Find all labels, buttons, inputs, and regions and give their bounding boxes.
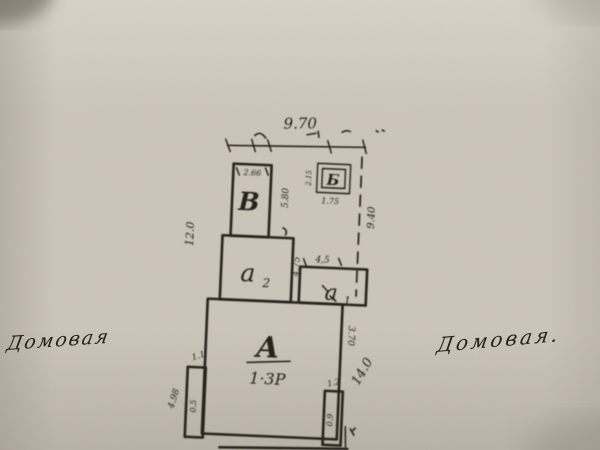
dim-tick <box>344 427 346 447</box>
room-a2-index: 2 <box>261 276 270 290</box>
dim-room-v-height: 5.80 <box>281 187 292 208</box>
room-a1-label: а <box>324 281 338 307</box>
dim-porch-right-inner: 0.9 <box>325 414 335 427</box>
building-a-sublabel: 1·3Р <box>249 369 286 390</box>
room-a1-index: 1 <box>344 295 352 308</box>
kiosk-b-label: Б <box>325 171 340 190</box>
dim-room-v-width: 2.66 <box>242 168 261 178</box>
room-a2-label: а <box>240 258 256 288</box>
dim-top-width: 9.70 <box>283 114 317 132</box>
dim-right-boundary: 9.40 <box>366 206 378 229</box>
dim-wall-right-upper: 3.70 <box>345 326 356 347</box>
building-a-label: А <box>253 330 280 365</box>
scanned-plan-page: 9.70 9.40 12.0 В 2.66 5.80 Б 1.75 2.15 а… <box>0 0 600 450</box>
dim-left-side: 12.0 <box>183 221 197 246</box>
dim-porch-left-width: 0.5 <box>189 400 199 413</box>
plan-canvas: 9.70 9.40 12.0 В 2.66 5.80 Б 1.75 2.15 а… <box>0 0 600 450</box>
paper-grain <box>0 0 600 450</box>
dim-kiosk-b-width: 1.75 <box>321 196 339 206</box>
dim-kiosk-b-height: 2.15 <box>305 169 314 186</box>
room-v-label: В <box>237 187 260 217</box>
dim-room-a1-width: 4,5 <box>314 255 330 266</box>
